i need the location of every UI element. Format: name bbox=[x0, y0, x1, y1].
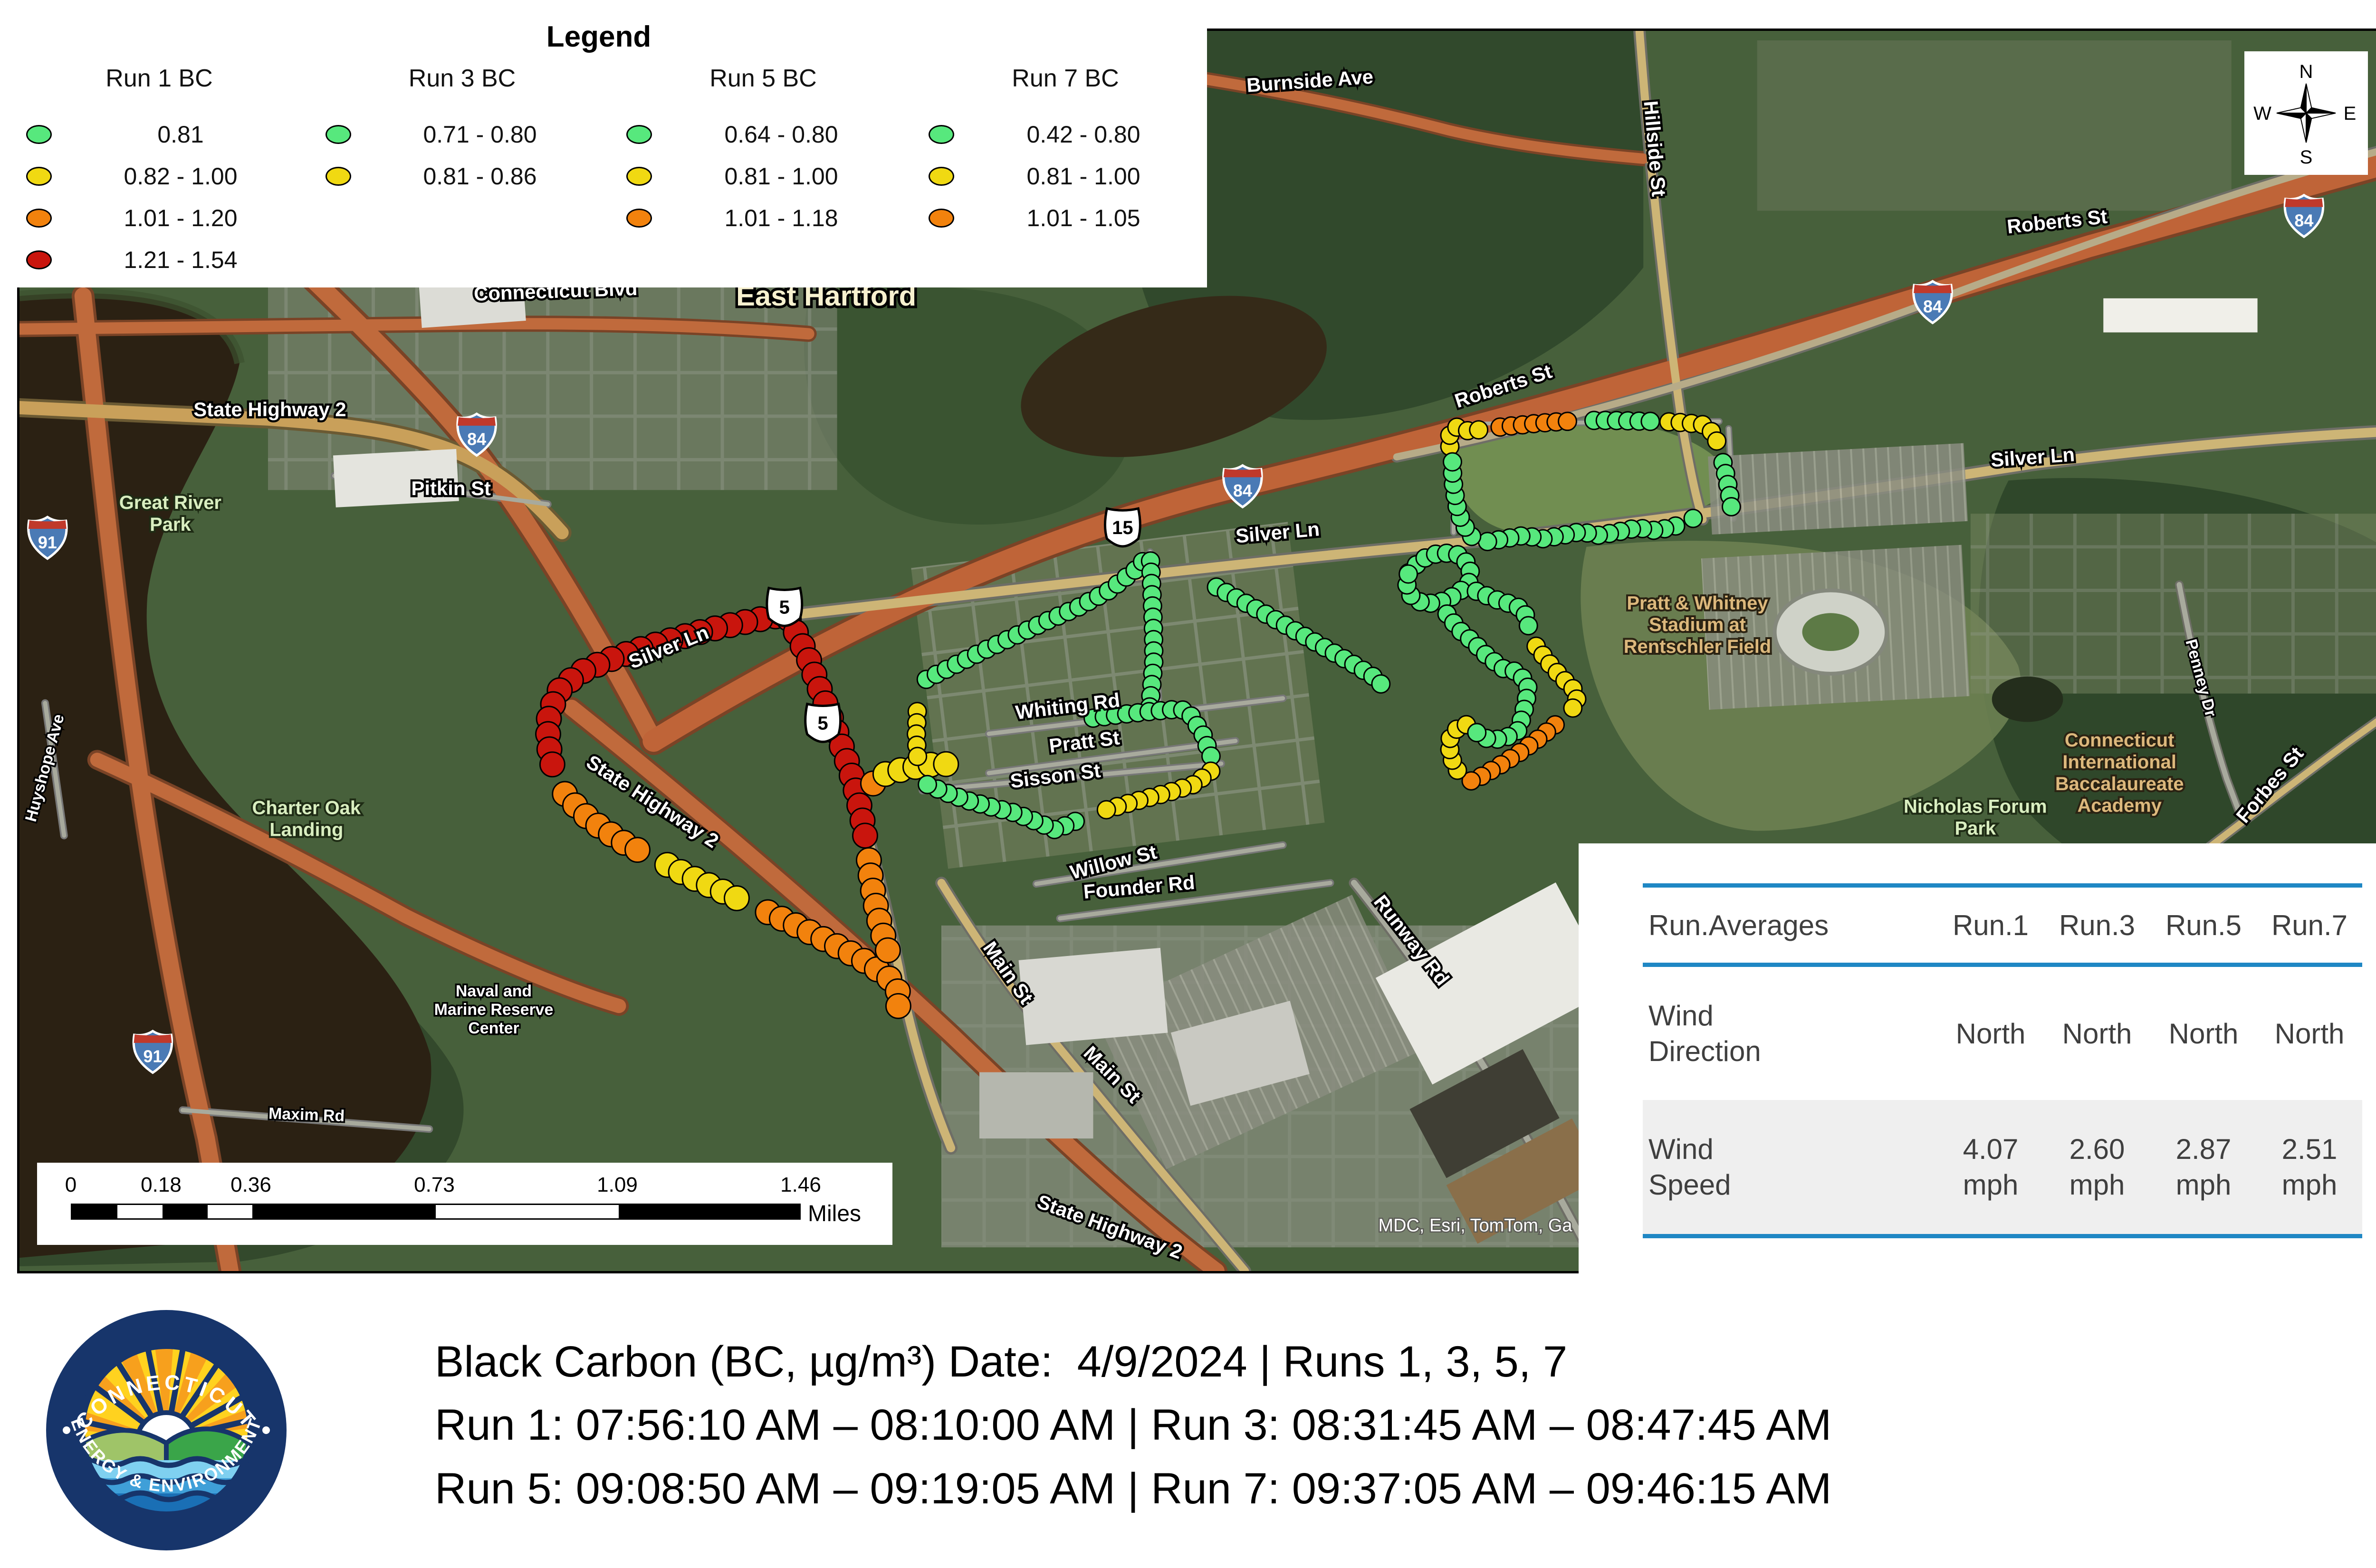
table-header-cell: Run.Averages bbox=[1643, 909, 1937, 942]
legend-swatch bbox=[326, 125, 351, 144]
compass-star bbox=[2277, 84, 2336, 143]
table-header-cell: Run.3 bbox=[2044, 909, 2150, 942]
map-label: Pitkin St bbox=[411, 477, 491, 499]
caption-line1: Black Carbon (BC, µg/m³) Date: 4/9/2024 … bbox=[435, 1338, 1567, 1386]
scale-tick: 0.36 bbox=[230, 1173, 271, 1197]
trail-dot bbox=[1470, 421, 1488, 439]
run-averages-table: Run.AveragesRun.1Run.3Run.5Run.7Wind Dir… bbox=[1643, 883, 2362, 1238]
trail-dot bbox=[1444, 453, 1462, 471]
legend-swatch bbox=[26, 250, 52, 269]
legend-label: 0.81 - 1.00 bbox=[965, 155, 1202, 197]
trail-dot bbox=[1708, 432, 1726, 450]
scale-unit: Miles bbox=[808, 1201, 861, 1227]
map-attribution: MDC, Esri, TomTom, Ga bbox=[1379, 1215, 1573, 1235]
compass-s: S bbox=[2300, 147, 2313, 168]
svg-text:15: 15 bbox=[1112, 517, 1133, 538]
svg-text:84: 84 bbox=[1923, 297, 1942, 316]
legend-label: 0.81 bbox=[69, 114, 292, 155]
legend-swatch bbox=[626, 209, 652, 228]
trail-dot bbox=[886, 994, 910, 1018]
table-value-cell: 2.51 mph bbox=[2257, 1131, 2362, 1203]
scale-bar-strip bbox=[71, 1204, 801, 1220]
scale-tick: 0.18 bbox=[141, 1173, 182, 1197]
legend-label: 0.71 - 0.80 bbox=[361, 114, 599, 155]
legend-run-header: Run 5 BC bbox=[626, 62, 900, 95]
map-label: State Highway 2 bbox=[193, 398, 346, 421]
scale-tick: 0 bbox=[65, 1173, 77, 1197]
legend-label: 0.81 - 0.86 bbox=[361, 155, 599, 197]
table-row-label: Wind Direction bbox=[1643, 998, 1937, 1069]
trail-dot bbox=[1559, 412, 1577, 430]
trail-dot bbox=[1684, 509, 1702, 527]
table-value-cell: North bbox=[1937, 1016, 2044, 1052]
trail-run3-west-y bbox=[907, 703, 926, 765]
table-value-cell: 4.07 mph bbox=[1937, 1131, 2044, 1203]
legend-label: 1.01 - 1.18 bbox=[662, 197, 900, 239]
legend-swatch bbox=[26, 209, 52, 228]
trail-dot bbox=[625, 838, 650, 862]
trail-run7-top-g bbox=[1585, 411, 1659, 430]
table-header-cell: Run.5 bbox=[2150, 909, 2257, 942]
legend-swatch bbox=[26, 167, 52, 186]
svg-text:91: 91 bbox=[143, 1047, 162, 1066]
svg-text:84: 84 bbox=[1233, 481, 1252, 500]
legend-run-header: Run 1 BC bbox=[26, 62, 292, 95]
legend-label: 1.21 - 1.54 bbox=[69, 239, 292, 281]
table-value-cell: 2.87 mph bbox=[2150, 1131, 2257, 1203]
compass-w: W bbox=[2253, 103, 2271, 124]
legend-label: 0.42 - 0.80 bbox=[965, 114, 1202, 155]
legend-swatch bbox=[626, 125, 652, 144]
trail-dot bbox=[919, 775, 937, 794]
trail-dot bbox=[1641, 412, 1659, 430]
legend-label: 0.82 - 1.00 bbox=[69, 155, 292, 197]
legend-swatch bbox=[929, 125, 954, 144]
run-averages-panel: Run.AveragesRun.1Run.3Run.5Run.7Wind Dir… bbox=[1579, 843, 2376, 1273]
svg-text:5: 5 bbox=[779, 597, 790, 618]
legend-swatch bbox=[626, 167, 652, 186]
trail-dot bbox=[875, 938, 900, 963]
table-value-cell: North bbox=[2257, 1016, 2362, 1052]
legend-swatch bbox=[326, 167, 351, 186]
legend-label: 0.81 - 1.00 bbox=[662, 155, 900, 197]
scale-tick: 1.09 bbox=[597, 1173, 638, 1197]
table-value-cell: North bbox=[2044, 1016, 2150, 1052]
legend-run-header: Run 7 BC bbox=[929, 62, 1202, 95]
scale-bar: 00.180.360.731.091.46 Miles bbox=[37, 1163, 892, 1245]
trail-dot bbox=[1399, 565, 1418, 583]
caption: Black Carbon (BC, µg/m³) Date: 4/9/2024 … bbox=[435, 1330, 2288, 1520]
trail-dot bbox=[1468, 724, 1486, 742]
table-header-cell: Run.1 bbox=[1937, 909, 2044, 942]
svg-text:84: 84 bbox=[467, 430, 486, 449]
svg-text:5: 5 bbox=[818, 713, 828, 734]
table-row-label: Wind Speed bbox=[1643, 1131, 1937, 1203]
trail-dot bbox=[724, 886, 749, 911]
trail-dot bbox=[1097, 801, 1115, 819]
trail-dot bbox=[1519, 617, 1537, 635]
route-5-shield: 5 bbox=[805, 704, 841, 742]
trail-dot bbox=[853, 823, 878, 848]
legend-swatch bbox=[929, 209, 954, 228]
map-label: Maxim Rd bbox=[268, 1104, 345, 1125]
route-5-shield: 5 bbox=[767, 588, 802, 626]
compass-e: E bbox=[2344, 103, 2357, 124]
compass-rose: N E S W bbox=[2244, 51, 2368, 175]
legend-label: 1.01 - 1.20 bbox=[69, 197, 292, 239]
trail-dot bbox=[1722, 498, 1740, 516]
table-value-cell: North bbox=[2150, 1016, 2257, 1052]
trail-dot bbox=[1372, 675, 1390, 693]
legend-panel: Legend Run 1 BC0.810.82 - 1.001.01 - 1.2… bbox=[0, 0, 1207, 287]
legend-label: 1.01 - 1.05 bbox=[965, 197, 1202, 239]
table-header-cell: Run.7 bbox=[2257, 909, 2362, 942]
scale-tick: 0.73 bbox=[414, 1173, 455, 1197]
caption-line2: Run 1: 07:56:10 AM – 08:10:00 AM | Run 3… bbox=[435, 1401, 1831, 1449]
page: 848484848491915515 Burnside AveHillside … bbox=[0, 0, 2376, 1568]
trail-dot bbox=[1564, 699, 1582, 717]
legend-run-header: Run 3 BC bbox=[326, 62, 599, 95]
trail-dot bbox=[540, 752, 565, 777]
legend-swatch bbox=[26, 125, 52, 144]
trail-dot bbox=[909, 747, 927, 765]
ct-energy-environment-logo: CONNECTICUT ENERGY & ENVIRONMENT bbox=[45, 1309, 287, 1551]
compass-n: N bbox=[2299, 61, 2313, 82]
warehouse-2 bbox=[2103, 298, 2257, 333]
trail-dot bbox=[934, 752, 958, 776]
trail-run7-dot bbox=[1684, 509, 1702, 527]
svg-text:91: 91 bbox=[38, 533, 57, 552]
table-value-cell: 2.60 mph bbox=[2044, 1131, 2150, 1203]
legend-swatch bbox=[929, 167, 954, 186]
small-pond bbox=[1992, 677, 2063, 722]
legend-label: 0.64 - 0.80 bbox=[662, 114, 900, 155]
svg-text:84: 84 bbox=[2294, 211, 2313, 230]
legend-title: Legend bbox=[504, 20, 694, 54]
caption-line3: Run 5: 09:08:50 AM – 09:19:05 AM | Run 7… bbox=[435, 1464, 1831, 1513]
route-15-shield: 15 bbox=[1105, 508, 1140, 546]
scale-tick: 1.46 bbox=[780, 1173, 821, 1197]
